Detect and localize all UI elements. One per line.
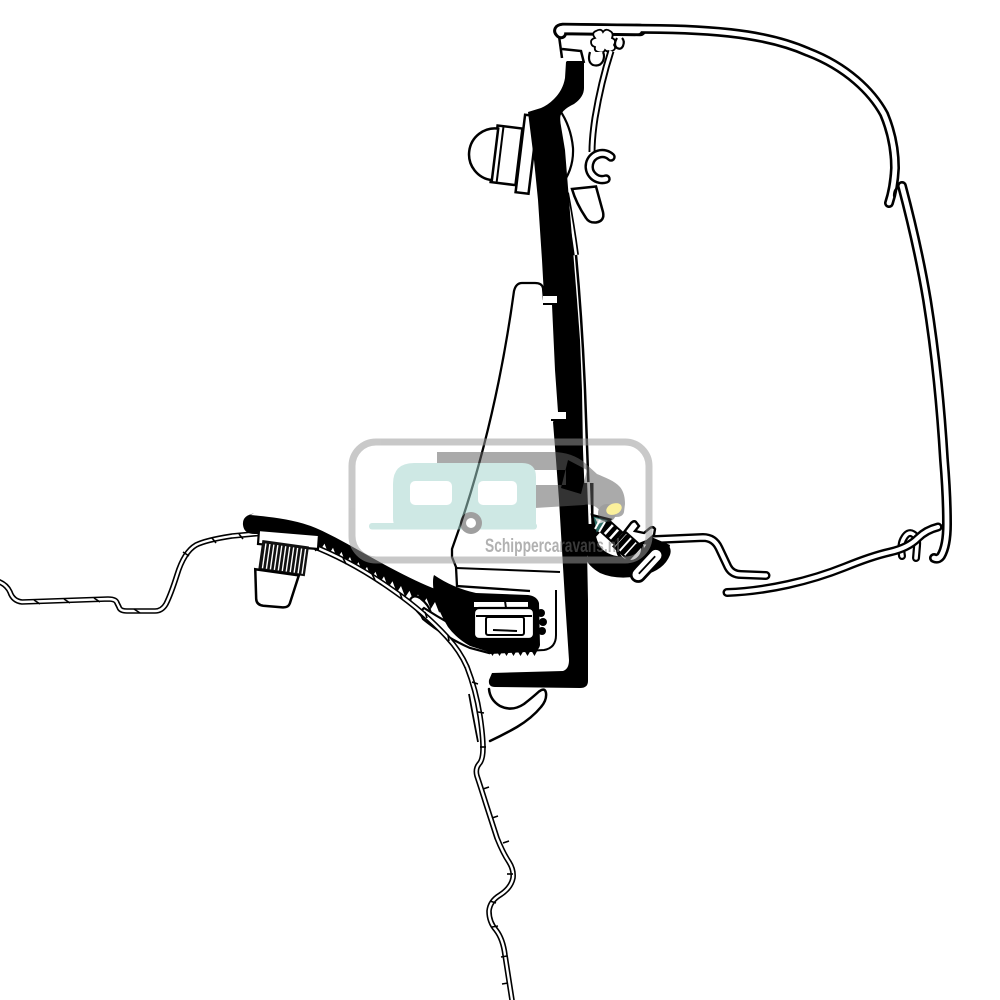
svg-text:Schippercaravans.nl: Schippercaravans.nl xyxy=(485,536,620,557)
